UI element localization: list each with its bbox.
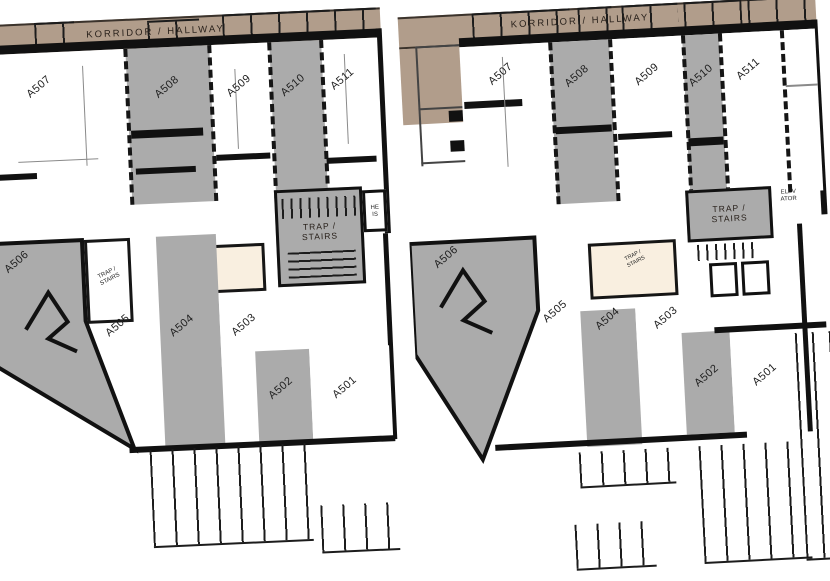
balcony-comb bbox=[698, 441, 812, 564]
balcony-comb bbox=[574, 521, 656, 571]
room-a506-shape bbox=[410, 238, 546, 463]
left-wing: KORRIDOR / HALLWAY TRAP / STAIRS HE IS T… bbox=[0, 7, 408, 559]
balcony-comb bbox=[150, 443, 314, 548]
floorplan-page: { "plan": { "corridor_label": "KORRIDOR … bbox=[0, 0, 830, 555]
balcony-comb bbox=[320, 502, 400, 553]
right-wing: KORRIDOR / HALLWAY TRAP / STAIRS TRAP / … bbox=[398, 0, 830, 577]
balcony-comb bbox=[579, 447, 677, 488]
